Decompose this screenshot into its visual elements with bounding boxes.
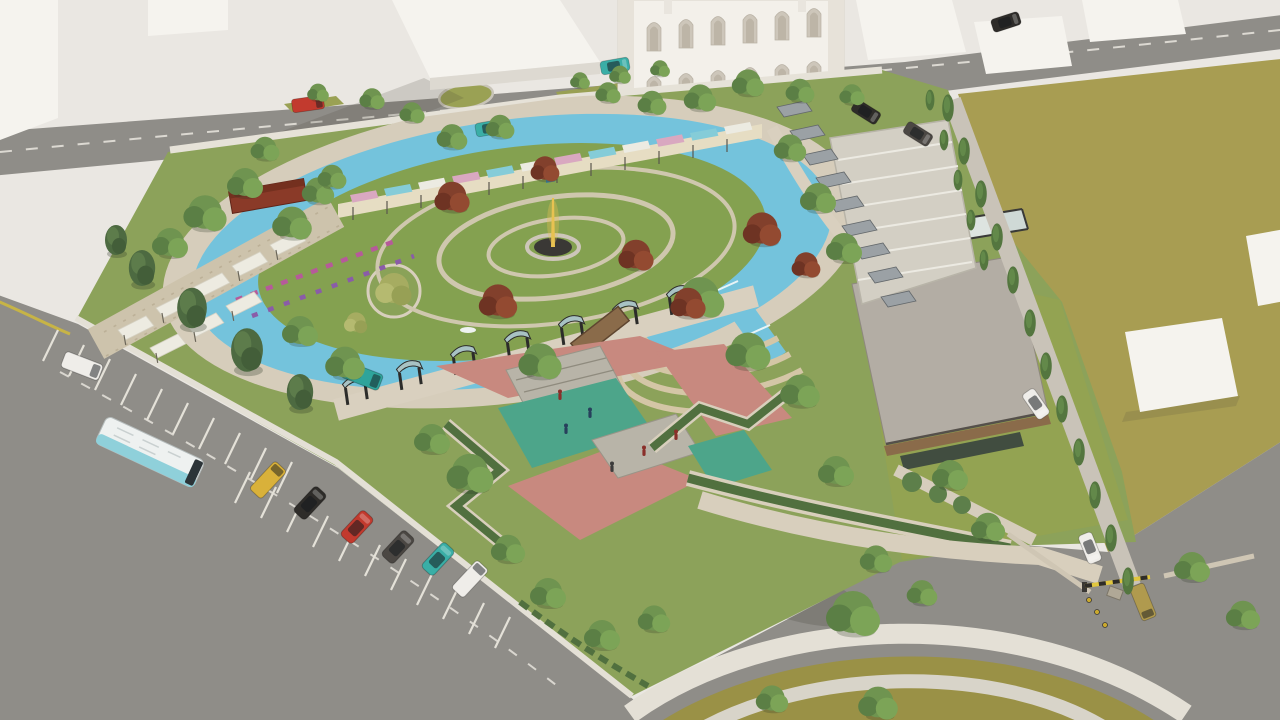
poplar-tree — [1007, 266, 1019, 293]
poplar-tree — [1056, 395, 1068, 422]
poplar-tree — [926, 90, 935, 111]
pine-tree — [287, 374, 313, 414]
poplar-tree — [1105, 524, 1117, 551]
poplar-tree — [1122, 567, 1134, 594]
block — [856, 0, 966, 60]
arch-window — [647, 23, 661, 52]
bollard — [1087, 598, 1092, 603]
swan — [460, 327, 476, 333]
poplar-tree — [975, 180, 987, 207]
person — [642, 446, 646, 457]
turret — [664, 0, 672, 14]
arch-window — [807, 9, 821, 38]
person — [558, 390, 562, 401]
person — [610, 462, 614, 473]
shrub — [953, 496, 971, 514]
poplar-tree — [1073, 438, 1085, 465]
park-render-stage: Aerial 3D architectural rendering of an … — [0, 0, 1280, 720]
arch-window — [743, 15, 757, 44]
block — [1125, 318, 1238, 412]
person — [588, 408, 592, 419]
arch-window — [679, 20, 693, 49]
pine-tree — [177, 288, 207, 333]
shrub — [902, 472, 922, 492]
person — [564, 424, 568, 435]
bollard — [1103, 623, 1108, 628]
poplar-tree — [967, 210, 976, 231]
poplar-tree — [954, 170, 963, 191]
poplar-tree — [991, 223, 1003, 250]
block — [974, 16, 1072, 74]
person — [674, 430, 678, 441]
poplar-tree — [1024, 309, 1036, 336]
pine-tree — [105, 225, 127, 258]
poplar-tree — [942, 94, 954, 121]
block — [0, 0, 58, 140]
park-aerial-render: Aerial 3D architectural rendering of an … — [0, 0, 1280, 720]
poplar-tree — [940, 130, 949, 151]
poplar-tree — [980, 250, 989, 271]
block — [148, 0, 228, 36]
bollard — [1095, 610, 1100, 615]
poplar-tree — [1040, 352, 1052, 379]
arch-window — [711, 17, 725, 46]
pine-tree — [231, 328, 263, 376]
pine-tree — [129, 250, 155, 290]
arch-window — [775, 12, 789, 41]
poplar-tree — [958, 137, 970, 164]
turret — [798, 0, 806, 12]
poplar-tree — [1089, 481, 1101, 508]
